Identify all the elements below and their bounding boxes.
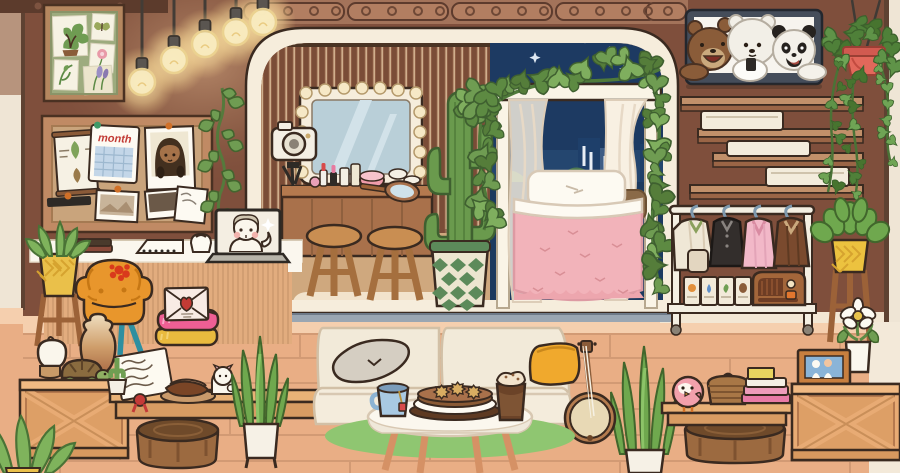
svg-text:month: month [98, 132, 132, 146]
